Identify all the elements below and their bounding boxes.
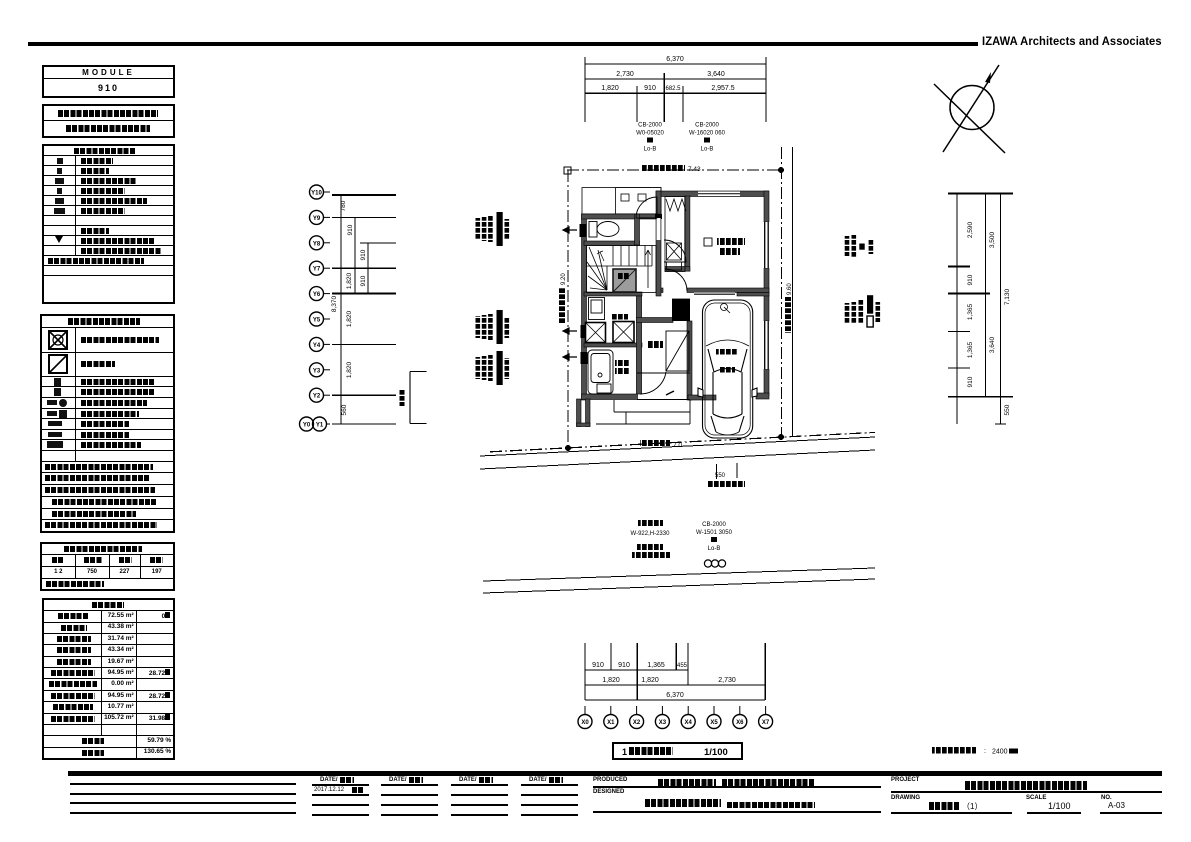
svg-text:Y5: Y5 xyxy=(313,318,321,324)
svg-text:X0: X0 xyxy=(581,720,589,726)
svg-text:1,820: 1,820 xyxy=(346,361,353,378)
svg-text:910: 910 xyxy=(644,85,656,92)
svg-text:2,730: 2,730 xyxy=(718,677,736,684)
svg-text:8,370: 8,370 xyxy=(331,295,338,312)
svg-text:Y3: Y3 xyxy=(313,368,321,374)
svg-text:7.43: 7.43 xyxy=(688,166,701,173)
svg-text:Y9: Y9 xyxy=(313,216,321,222)
svg-text:2,590: 2,590 xyxy=(967,221,974,238)
svg-text:910: 910 xyxy=(347,224,354,235)
svg-text:X2: X2 xyxy=(633,720,641,726)
svg-text:3,640: 3,640 xyxy=(707,71,725,78)
svg-text:1,365: 1,365 xyxy=(967,303,974,320)
svg-text:CB-2000: CB-2000 xyxy=(702,522,726,528)
svg-text:X1: X1 xyxy=(607,720,615,726)
svg-text:9.20: 9.20 xyxy=(561,273,567,285)
svg-text:Y0: Y0 xyxy=(303,423,311,429)
svg-text:910: 910 xyxy=(360,249,367,260)
svg-text:1,820: 1,820 xyxy=(602,677,620,684)
svg-text:1,820: 1,820 xyxy=(346,310,353,327)
svg-text:910: 910 xyxy=(967,376,974,387)
svg-text:3,500: 3,500 xyxy=(989,231,996,248)
svg-text:682.5: 682.5 xyxy=(665,86,681,92)
svg-text:Y6: Y6 xyxy=(313,292,321,298)
svg-text:550: 550 xyxy=(1004,404,1011,415)
svg-text:6,370: 6,370 xyxy=(666,56,684,63)
svg-text:3,640: 3,640 xyxy=(989,336,996,353)
svg-text:Y1: Y1 xyxy=(316,423,324,429)
svg-text:1,820: 1,820 xyxy=(601,85,619,92)
svg-text:Y4: Y4 xyxy=(313,343,321,349)
svg-text:X7: X7 xyxy=(762,720,770,726)
svg-text:2400: 2400 xyxy=(992,749,1008,756)
svg-text:6,370: 6,370 xyxy=(666,692,684,699)
svg-text:Lo-B: Lo-B xyxy=(708,546,721,552)
svg-text:Y7: Y7 xyxy=(313,267,321,273)
svg-text:1,820: 1,820 xyxy=(641,677,659,684)
svg-text:W-922,H-2330: W-922,H-2330 xyxy=(631,531,671,537)
svg-text:X3: X3 xyxy=(659,720,667,726)
svg-text:560: 560 xyxy=(341,404,348,415)
svg-text:2,730: 2,730 xyxy=(616,71,634,78)
svg-text:910: 910 xyxy=(360,275,367,286)
svg-text::: : xyxy=(984,748,986,755)
svg-text:7,130: 7,130 xyxy=(1004,288,1011,305)
svg-text:780: 780 xyxy=(340,200,347,211)
svg-text:1,820: 1,820 xyxy=(346,272,353,289)
svg-text:1,365: 1,365 xyxy=(967,341,974,358)
svg-text:W0-05020: W0-05020 xyxy=(636,131,664,137)
svg-text:9.60: 9.60 xyxy=(787,283,793,295)
svg-text:Y10: Y10 xyxy=(311,191,322,197)
svg-text:2,957.5: 2,957.5 xyxy=(711,85,734,92)
svg-text:7.0: 7.0 xyxy=(673,442,682,449)
svg-text:910: 910 xyxy=(592,662,604,669)
svg-text:910: 910 xyxy=(618,662,630,669)
svg-text:W-16020 060: W-16020 060 xyxy=(689,131,726,137)
svg-text:455: 455 xyxy=(677,663,688,669)
svg-text:1,365: 1,365 xyxy=(647,662,665,669)
svg-text:W-1501 3050: W-1501 3050 xyxy=(696,530,733,536)
svg-text:Lo-B: Lo-B xyxy=(644,147,657,153)
svg-text:CB-2000: CB-2000 xyxy=(695,123,719,129)
svg-text:Lo-B: Lo-B xyxy=(701,147,714,153)
svg-text:Y2: Y2 xyxy=(313,394,321,400)
svg-text:Y8: Y8 xyxy=(313,241,321,247)
svg-text:X4: X4 xyxy=(685,720,693,726)
svg-text:X6: X6 xyxy=(736,720,744,726)
svg-text:550: 550 xyxy=(715,473,726,479)
svg-text:CB-2000: CB-2000 xyxy=(638,123,662,129)
svg-text:X5: X5 xyxy=(710,720,718,726)
svg-text:910: 910 xyxy=(967,274,974,285)
